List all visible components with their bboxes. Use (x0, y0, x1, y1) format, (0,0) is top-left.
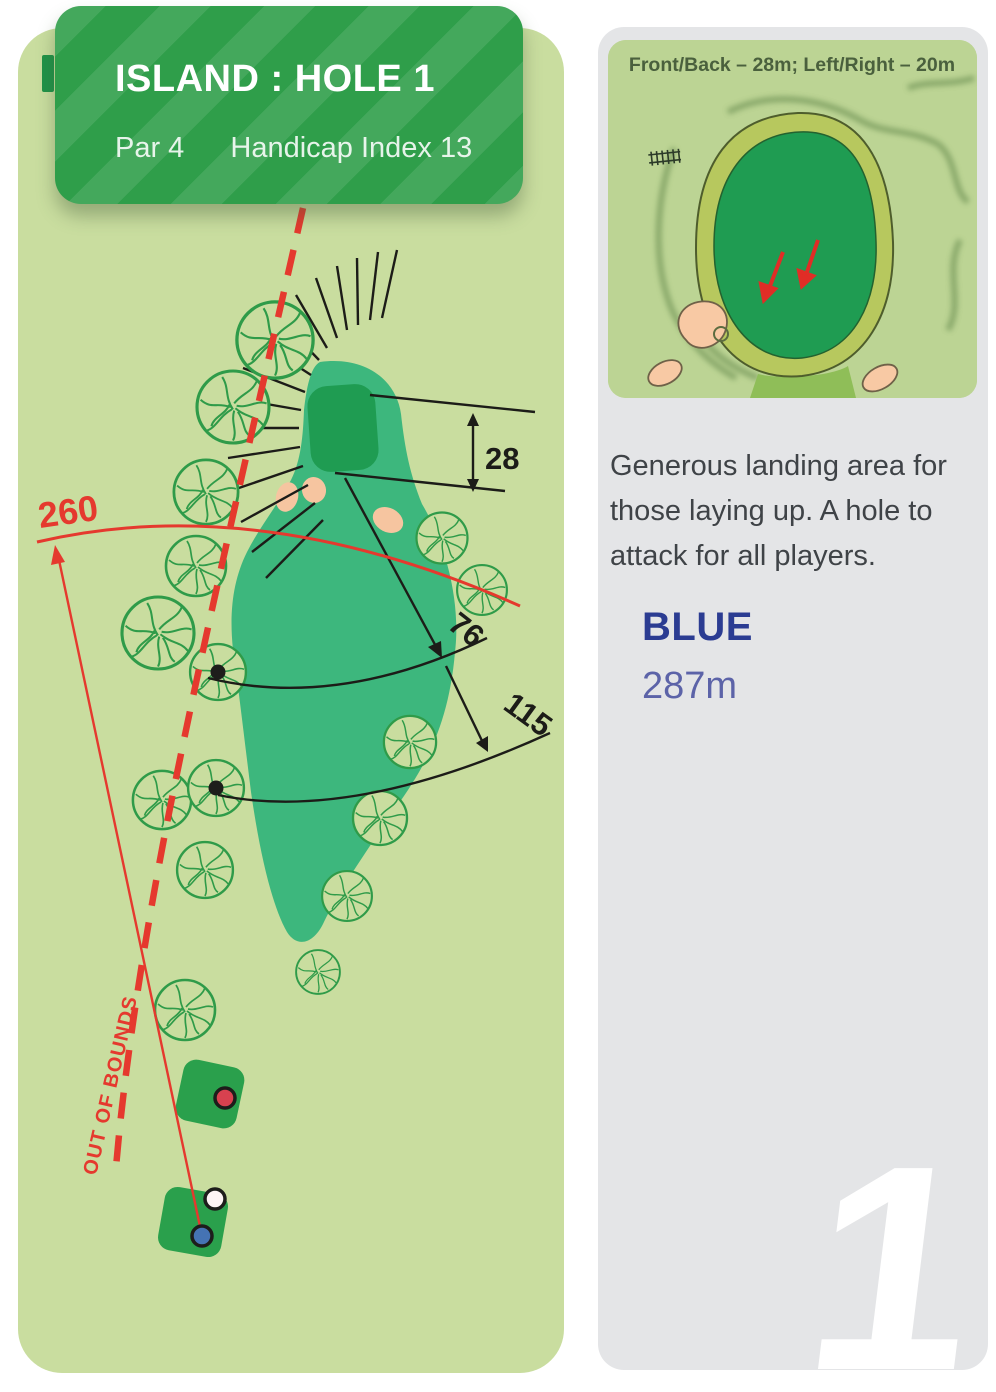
tee-name: BLUE (642, 605, 753, 650)
driving-distance-label: 260 (35, 487, 100, 536)
red-tee-marker (215, 1088, 235, 1108)
hole-number-watermark: 1 (798, 1160, 987, 1370)
distance-115-label: 115 (498, 686, 559, 744)
out-of-bounds-label: OUT OF BOUNDS (79, 994, 142, 1178)
distance-marker-dot (211, 665, 226, 680)
green-detail-inset: Front/Back – 28m; Left/Right – 20m (608, 40, 977, 398)
handicap-label: Handicap Index 13 (230, 132, 472, 165)
hole-map-svg: 28 76 115 260 OUT OF BOUNDS (18, 28, 564, 1373)
hole-header-card: ISLAND : HOLE 1 Par 4 Handicap Index 13 (55, 6, 523, 204)
putting-surface (714, 132, 876, 358)
green-detail-title: Front/Back – 28m; Left/Right – 20m (629, 54, 955, 76)
green-depth-label: 28 (485, 441, 519, 476)
hole-map-panel: 28 76 115 260 OUT OF BOUNDS (18, 28, 564, 1373)
hole-title: ISLAND : HOLE 1 (115, 58, 435, 101)
hole-subtitle: Par 4 Handicap Index 13 (115, 132, 472, 165)
background-lettering-fragment (42, 55, 54, 92)
info-sidebar: Front/Back – 28m; Left/Right – 20m Gener… (598, 27, 988, 1370)
tee-distance: 287m (642, 665, 737, 708)
green-detail-svg: Front/Back – 28m; Left/Right – 20m (608, 40, 977, 398)
putting-green (306, 383, 380, 474)
distance-marker-dot (209, 781, 224, 796)
hole-description: Generous landing area for those laying u… (610, 444, 964, 580)
par-label: Par 4 (115, 132, 184, 165)
white-tee-marker (205, 1189, 225, 1209)
blue-tee-marker (192, 1226, 212, 1246)
hole-guide-page: 28 76 115 260 OUT OF BOUNDS ISLAND : HOL… (0, 0, 996, 1392)
